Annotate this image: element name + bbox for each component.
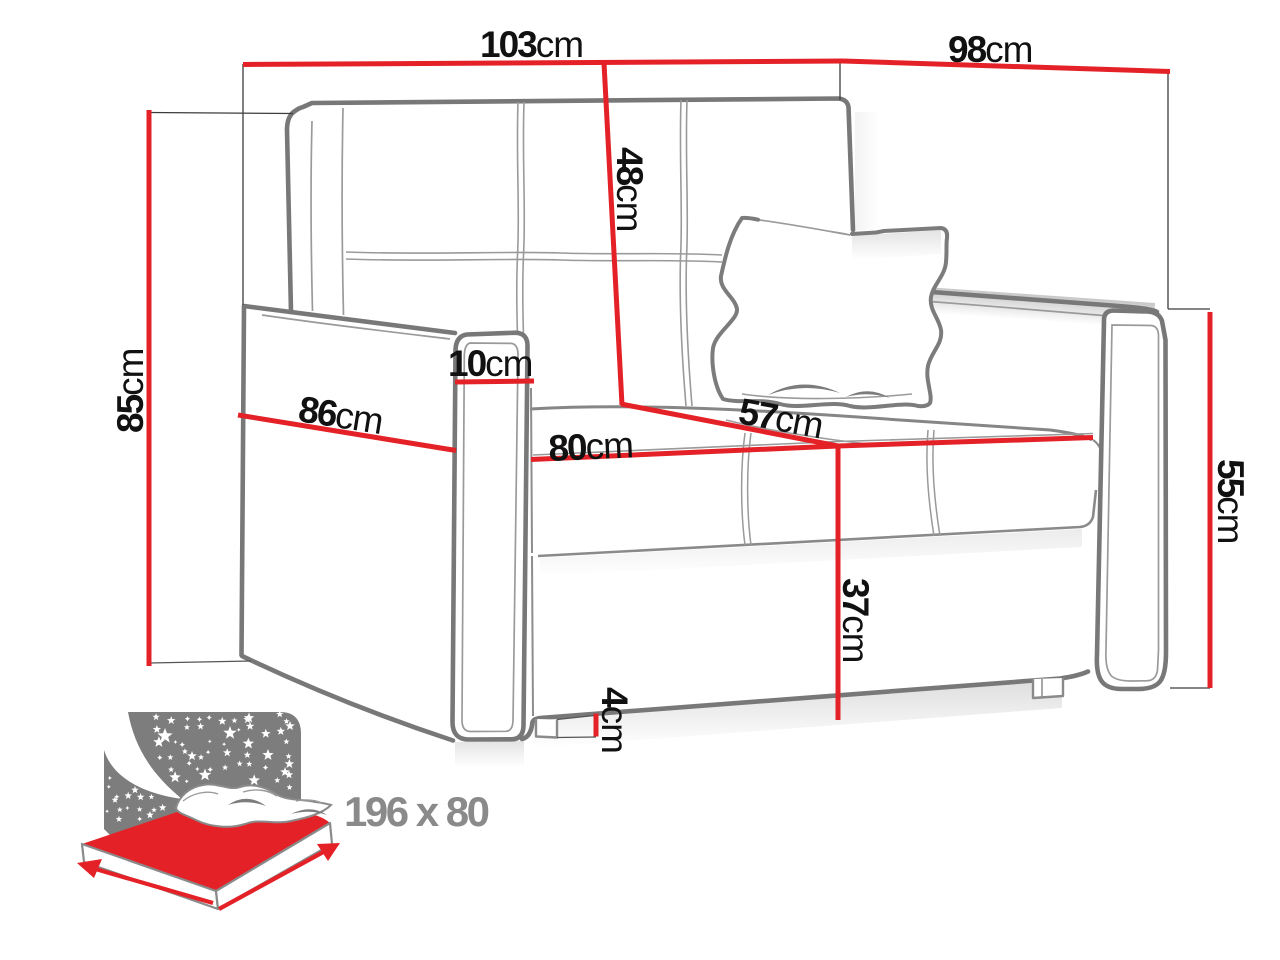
svg-text:98cm: 98cm xyxy=(948,29,1032,70)
svg-text:103cm: 103cm xyxy=(480,24,583,65)
svg-text:4cm: 4cm xyxy=(594,687,635,753)
svg-text:196 x 80: 196 x 80 xyxy=(344,788,489,835)
svg-text:48cm: 48cm xyxy=(609,147,650,231)
svg-text:10cm: 10cm xyxy=(448,343,532,384)
svg-text:85cm: 85cm xyxy=(110,349,151,433)
svg-text:80cm: 80cm xyxy=(548,424,634,469)
svg-text:55cm: 55cm xyxy=(1210,459,1251,543)
svg-text:37cm: 37cm xyxy=(835,578,876,662)
